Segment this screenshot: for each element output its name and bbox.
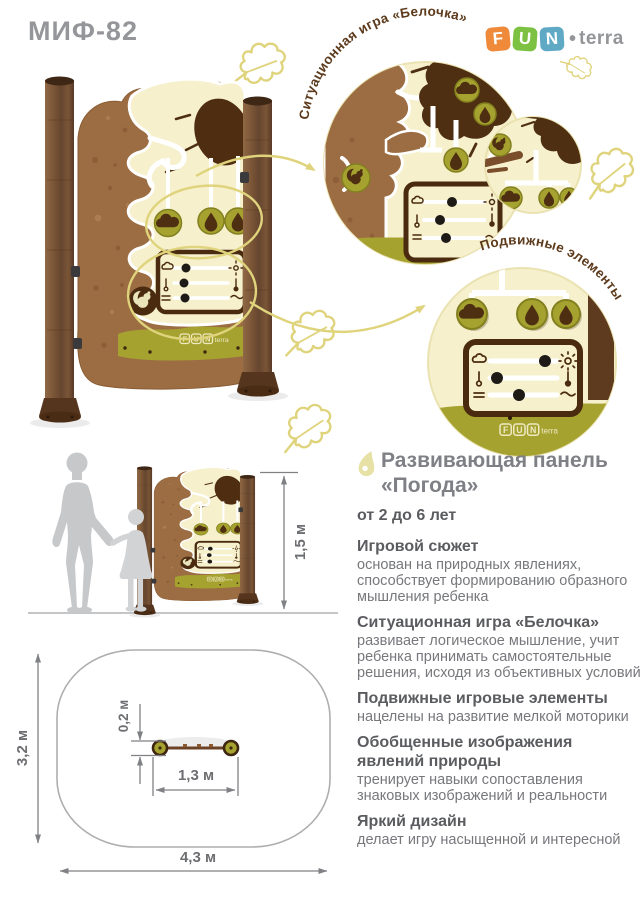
bullet-game-plot: Игровой сюжетоснован на природных явлени… [357,537,643,605]
height-dimension-label: 1,5 м [292,524,309,560]
brand-tile-f: F [485,26,511,52]
callout-circle-small [485,117,581,213]
drop-bullet-icon [357,448,375,477]
product-code: МИФ-82 [28,16,138,47]
zone-length-label: 4,3 м [180,849,216,866]
bullet-age: от 2 до 6 лет [357,506,643,526]
brand-tile-u: U [512,26,538,52]
panel-length-label: 1,3 м [178,767,214,784]
callout-circle-bottom [428,268,616,458]
page-title: Развивающая панель «Погода» [381,448,643,498]
info-column: Развивающая панель «Погода» от 2 до 6 ле… [357,448,643,848]
plan-view: 3,2 м 0,2 м 1,3 м 4,3 м [14,650,330,871]
bullet-movable-elements: Подвижные игровые элементынацелены на ра… [357,689,643,725]
brand-dot: • [569,28,576,51]
brand-suffix: terra [579,28,624,50]
small-equipment [129,466,263,617]
catalog-page: F U N terra [0,0,643,913]
bullet-situational-game: Ситуационная игра «Белочка»развивает лог… [357,613,643,681]
arrow-to-bottom-circle [250,302,424,332]
scale-view: 1,5 м [28,453,338,618]
main-equipment [30,77,288,429]
adult-silhouette [52,453,113,614]
bullet-nature-images: Обобщенные изображения явлений природытр… [357,733,643,804]
brand-tile-n: N [539,26,564,51]
brand-logo: F U N • terra [486,27,624,51]
bullet-bright-design: Яркий дизайнделает игру насыщенной и инт… [357,812,643,848]
zone-depth-label: 3,2 м [14,730,31,766]
plan-dimension-lines [38,654,327,871]
panel-depth-label: 0,2 м [116,700,131,733]
